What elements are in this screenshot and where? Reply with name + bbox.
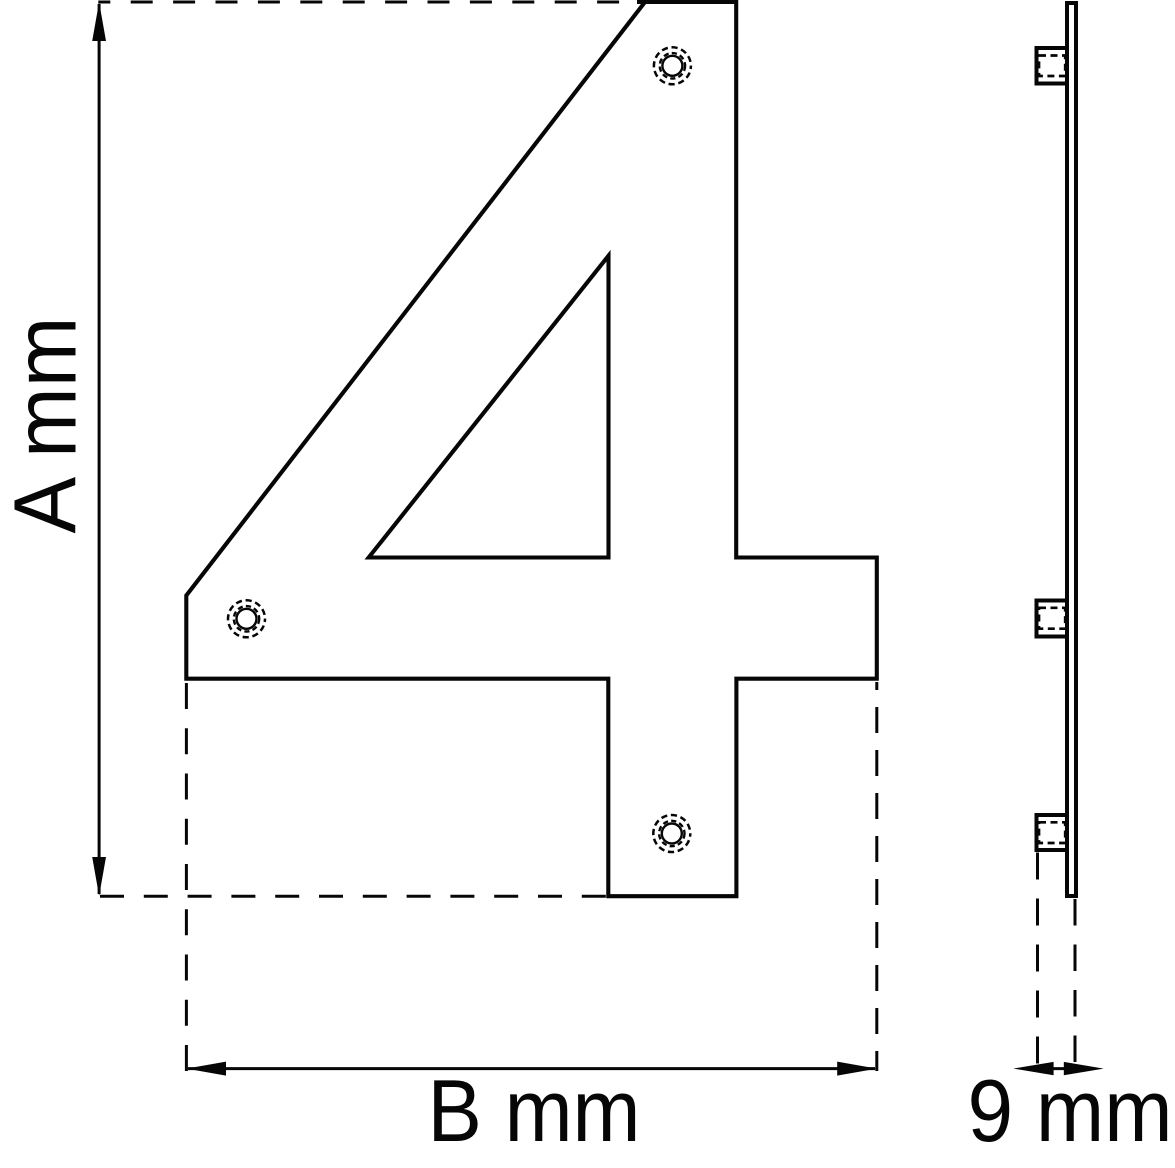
svg-text:B mm: B mm <box>428 1061 641 1160</box>
svg-text:9 mm: 9 mm <box>968 1061 1173 1160</box>
svg-text:A mm: A mm <box>0 317 95 534</box>
